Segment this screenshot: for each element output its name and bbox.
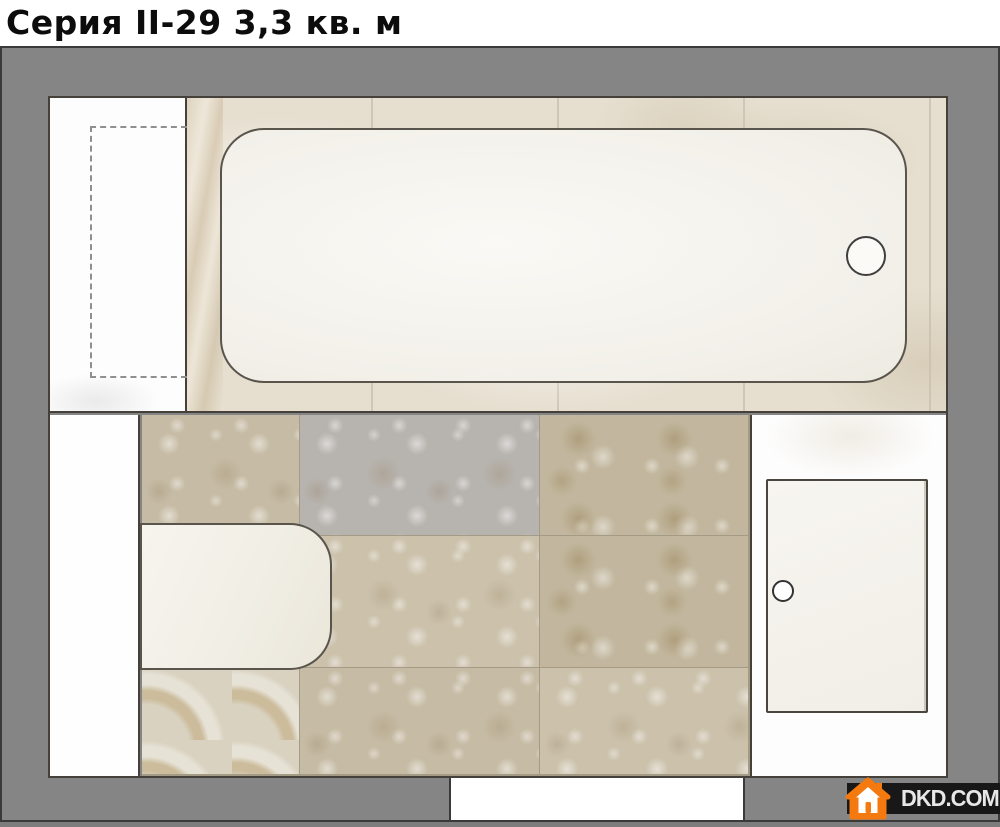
floor-tile xyxy=(142,415,299,535)
watermark-label: DKD.COM.UA xyxy=(901,783,1000,814)
page-title: Серия II-29 3,3 кв. м xyxy=(6,0,402,46)
floor-tile xyxy=(300,668,539,774)
marble-vein-band xyxy=(187,96,223,411)
floor-tile xyxy=(540,536,748,667)
fixture-knob-icon xyxy=(772,580,794,602)
floor-tile xyxy=(540,415,748,535)
floor-tile xyxy=(300,536,539,667)
floor-plan-page: Серия II-29 3,3 кв. м DKD.COM. xyxy=(0,0,1000,827)
door-opening xyxy=(449,778,745,820)
appliance-placeholder-dashed xyxy=(90,126,187,378)
watermark: DKD.COM.UA xyxy=(847,776,1000,822)
washbasin xyxy=(140,523,332,670)
house-icon xyxy=(844,776,892,820)
bathtub-drain-icon xyxy=(846,236,886,276)
floor-tile xyxy=(540,668,748,774)
bathtub xyxy=(220,128,907,383)
alcove-bottom-left xyxy=(48,415,140,776)
floor-tile xyxy=(300,415,539,535)
floor-tile xyxy=(142,668,299,774)
wall-shadow-strip xyxy=(0,822,1000,827)
